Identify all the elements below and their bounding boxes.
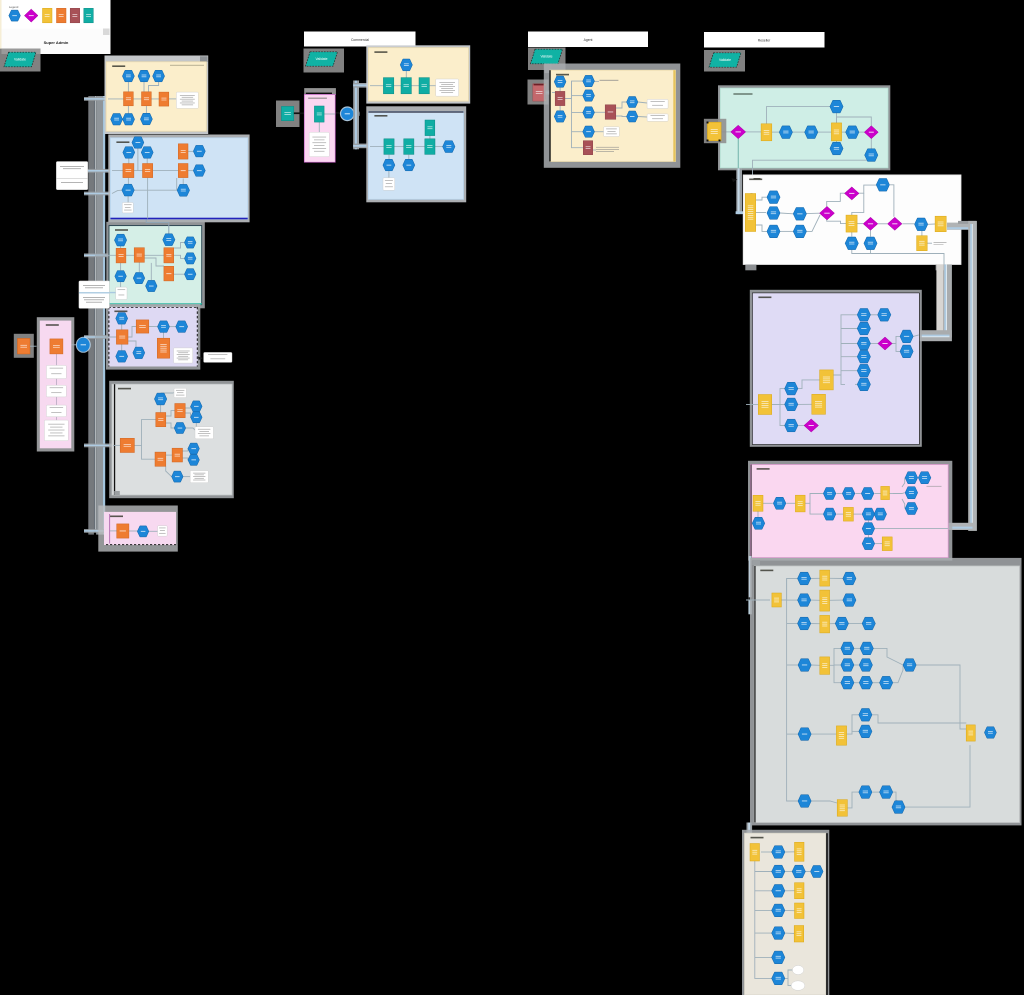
svg-text:Validate: Validate [540,55,552,59]
svg-text:Validate: Validate [315,57,327,61]
svg-text:Validate: Validate [14,58,26,62]
svg-text:Validate: Validate [719,58,731,62]
svg-text:Commercial: Commercial [351,38,369,42]
svg-text:Legend: Legend [9,5,19,9]
svg-text:Super Admin: Super Admin [44,40,69,45]
svg-text:Reseller: Reseller [758,39,771,43]
svg-text:Agent: Agent [584,38,593,42]
